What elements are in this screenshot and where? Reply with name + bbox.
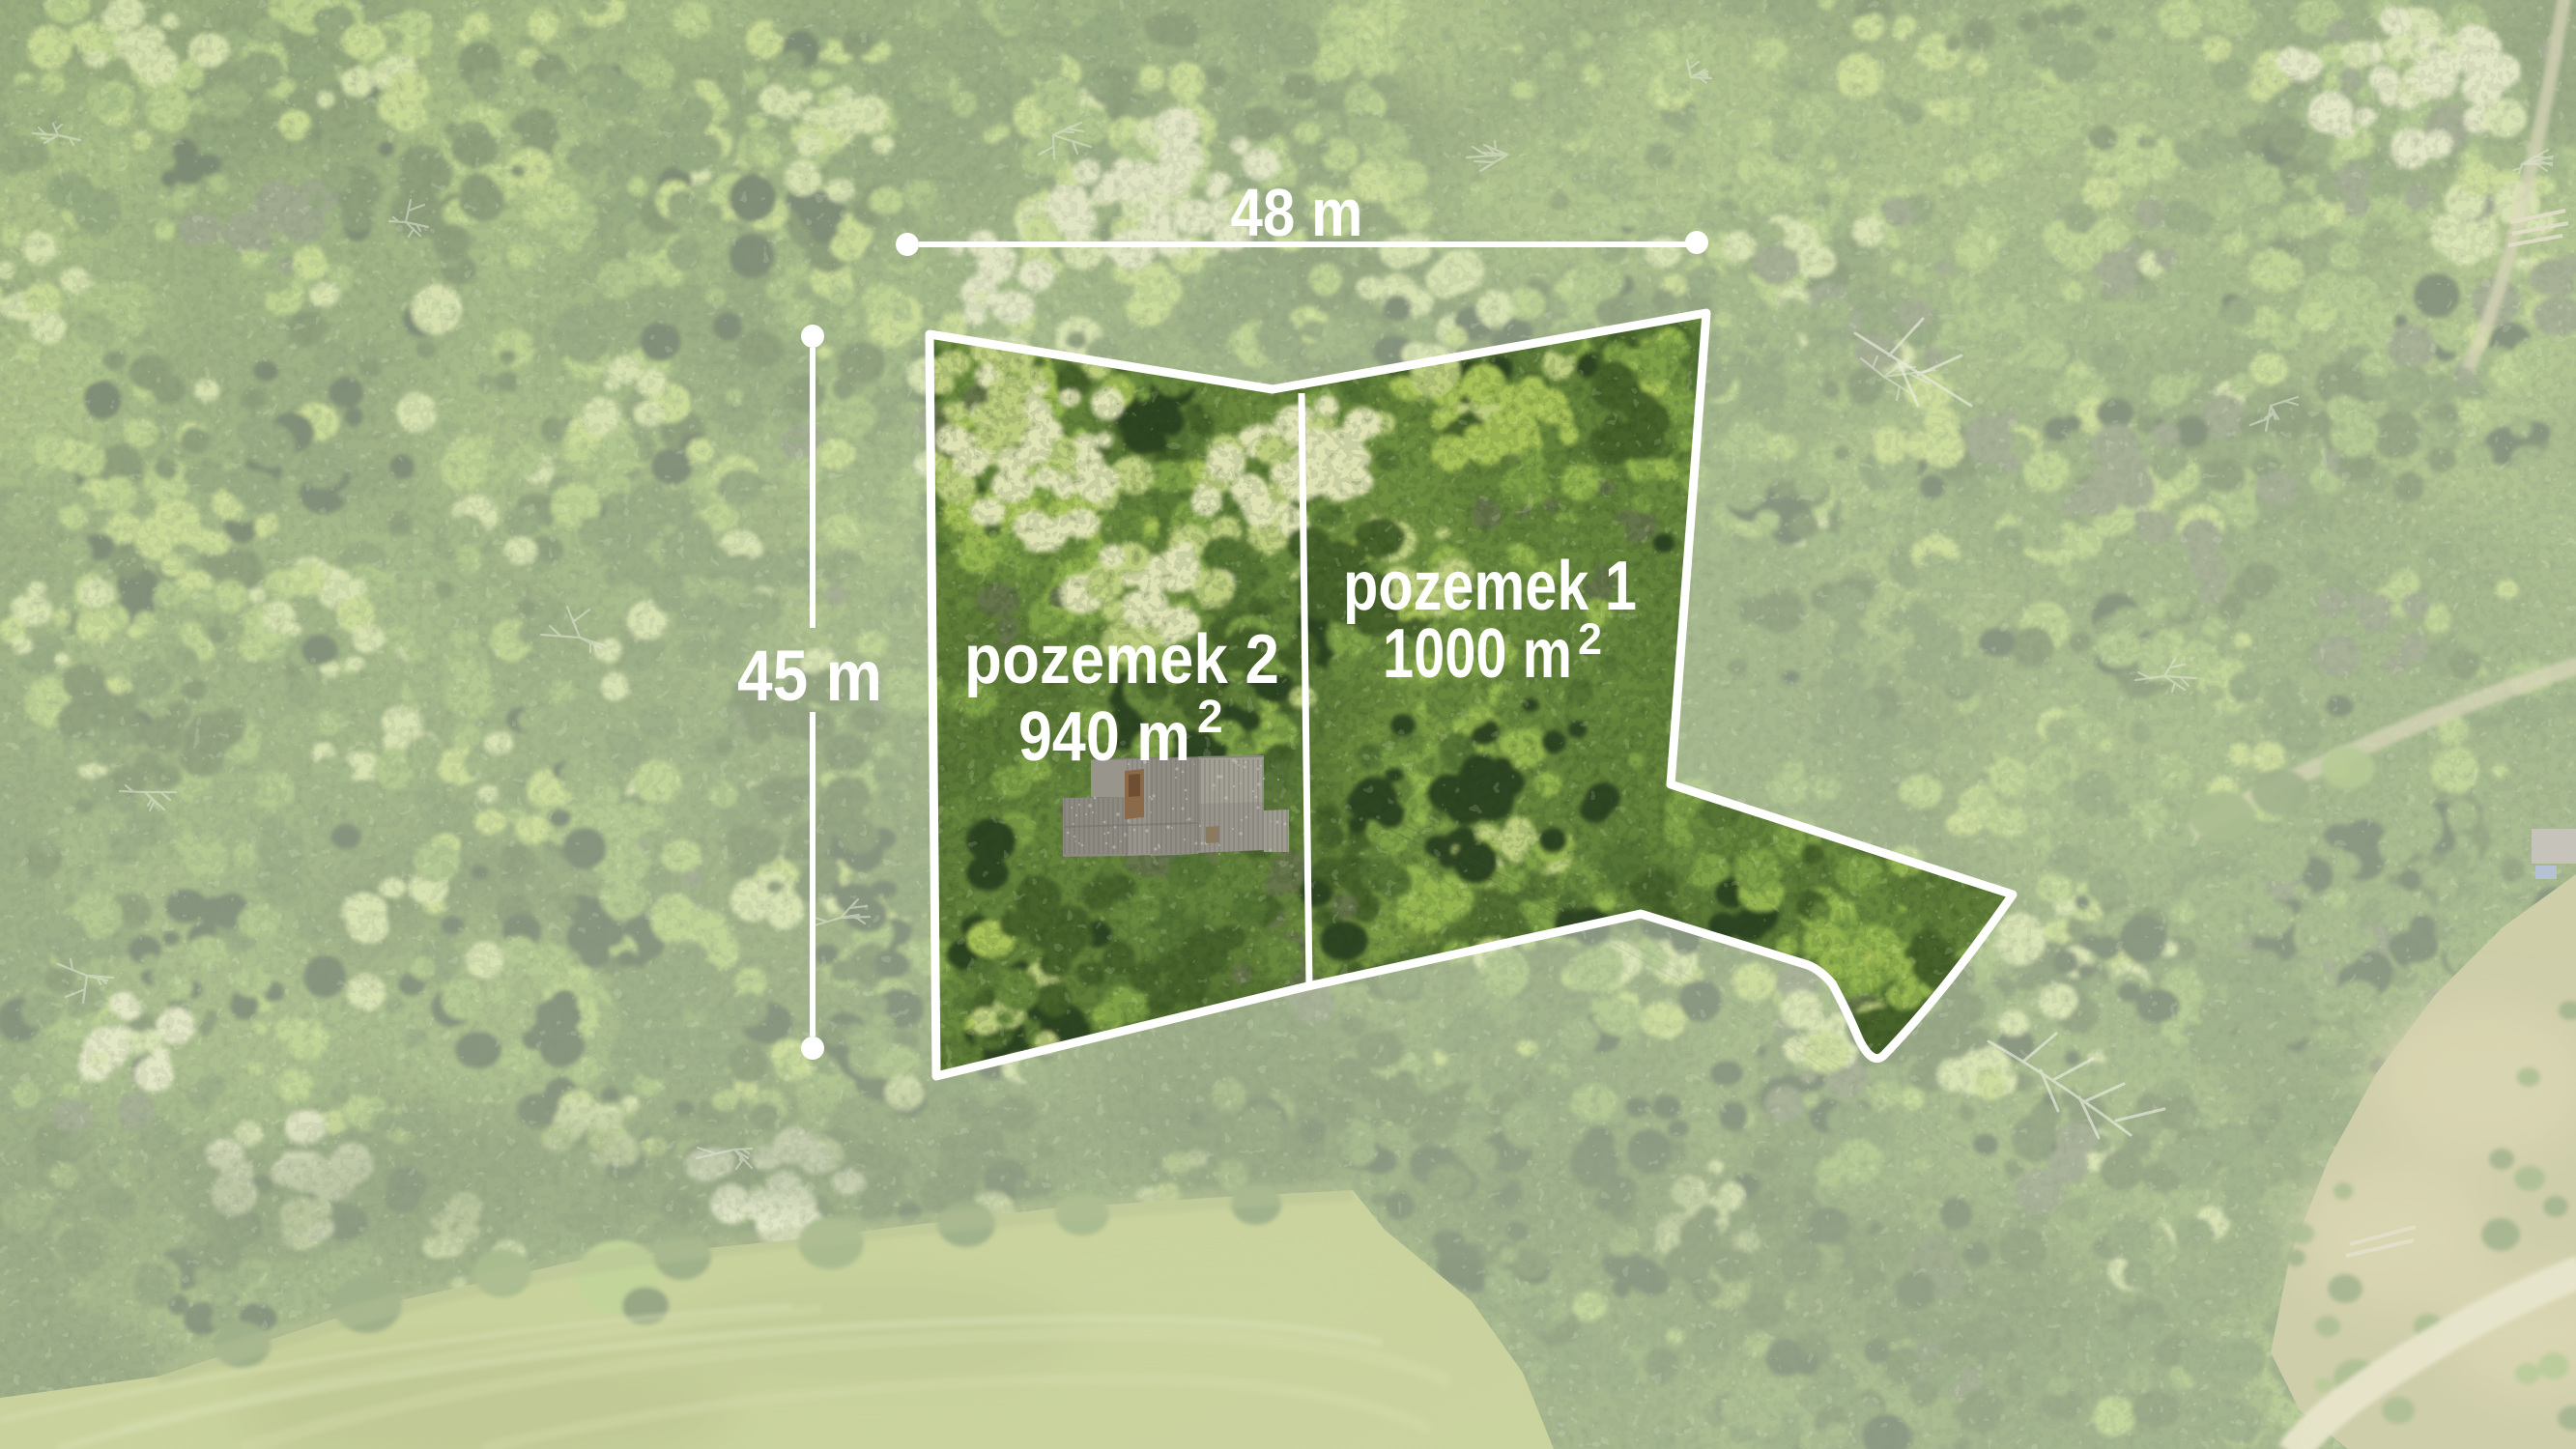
svg-text:pozemek 1: pozemek 1 <box>1343 548 1637 625</box>
svg-text:45 m: 45 m <box>737 636 882 716</box>
svg-text:pozemek 2: pozemek 2 <box>964 621 1279 698</box>
svg-text:48 m: 48 m <box>1231 175 1363 250</box>
svg-text:1000 m2: 1000 m2 <box>1383 614 1602 693</box>
